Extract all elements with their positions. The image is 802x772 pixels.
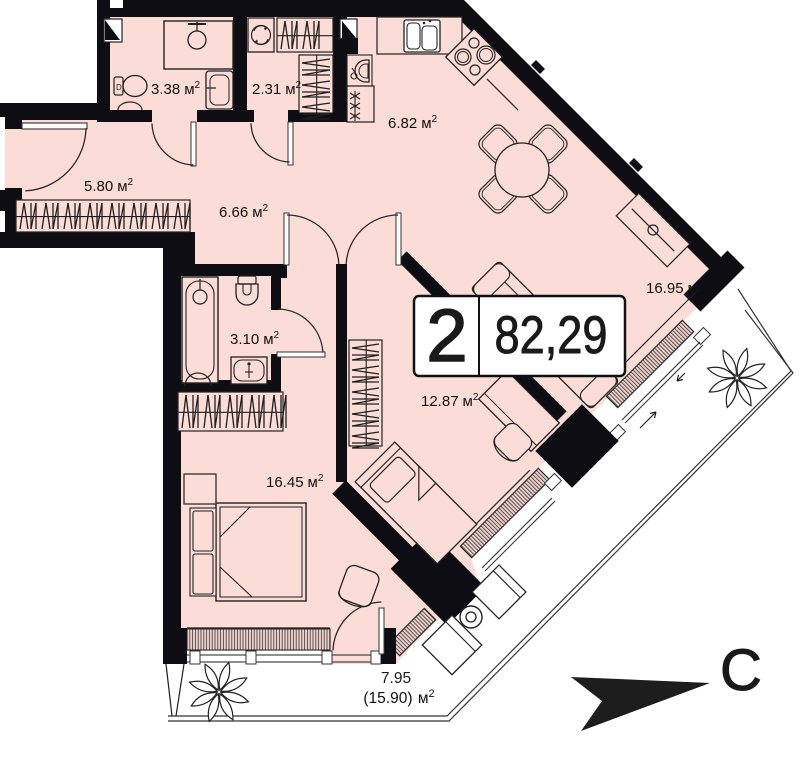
svg-text:3.10м2: 3.10м2 — [230, 330, 280, 348]
svg-text:6.66м2: 6.66м2 — [219, 203, 269, 221]
svg-text:(15.90) м2: (15.90) м2 — [363, 688, 434, 707]
svg-text:D: D — [116, 83, 122, 92]
svg-text:16.45м2: 16.45м2 — [266, 473, 324, 491]
svg-text:82,29: 82,29 — [495, 306, 608, 365]
svg-text:16.95м2: 16.95м2 — [646, 279, 704, 297]
svg-text:С: С — [720, 638, 762, 703]
svg-text:6.82м2: 6.82м2 — [388, 114, 438, 132]
svg-text:12.87м2: 12.87м2 — [421, 392, 479, 410]
svg-text:5.80м2: 5.80м2 — [84, 177, 134, 195]
svg-text:7.95: 7.95 — [381, 670, 411, 687]
svg-text:3.38м2: 3.38м2 — [151, 80, 201, 98]
svg-text:2: 2 — [426, 294, 467, 377]
svg-text:2.31м2: 2.31м2 — [252, 80, 302, 98]
